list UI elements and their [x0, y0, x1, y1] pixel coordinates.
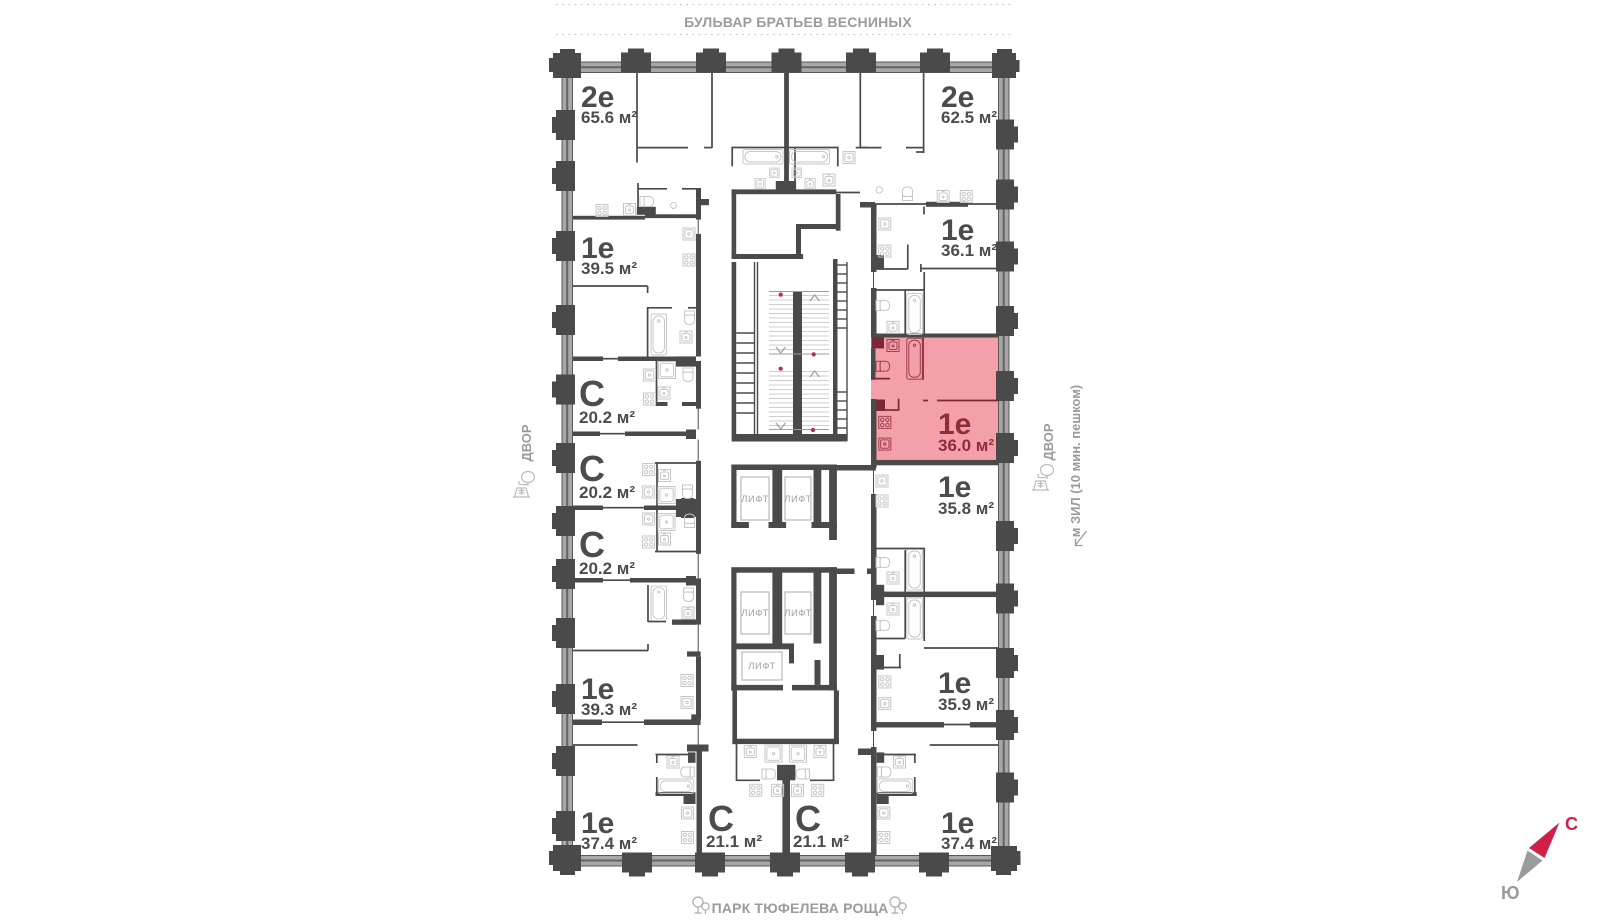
svg-text:65.6 м²: 65.6 м² — [581, 108, 637, 127]
svg-text:ЛИФТ: ЛИФТ — [784, 608, 812, 619]
svg-text:ЛИФТ: ЛИФТ — [741, 608, 769, 619]
svg-text:37.4 м²: 37.4 м² — [581, 834, 637, 853]
svg-text:ДВОР: ДВОР — [1041, 423, 1056, 460]
svg-text:м ЗИЛ (10 мин. пешком): м ЗИЛ (10 мин. пешком) — [1068, 385, 1083, 538]
svg-text:БУЛЬВАР БРАТЬЕВ ВЕСНИНЫХ: БУЛЬВАР БРАТЬЕВ ВЕСНИНЫХ — [684, 14, 912, 30]
svg-text:39.3 м²: 39.3 м² — [581, 700, 637, 719]
svg-text:36.0 м²: 36.0 м² — [938, 436, 994, 455]
svg-text:21.1 м²: 21.1 м² — [793, 832, 849, 851]
svg-text:20.2 м²: 20.2 м² — [579, 408, 635, 427]
svg-text:39.5 м²: 39.5 м² — [581, 259, 637, 278]
svg-text:62.5 м²: 62.5 м² — [941, 108, 997, 127]
svg-text:ДВОР: ДВОР — [519, 424, 534, 461]
svg-text:Ю: Ю — [1501, 883, 1520, 903]
svg-text:ЛИФТ: ЛИФТ — [741, 494, 769, 505]
svg-text:ЛИФТ: ЛИФТ — [748, 661, 776, 672]
svg-text:36.1 м²: 36.1 м² — [941, 241, 997, 260]
svg-text:20.2 м²: 20.2 м² — [579, 559, 635, 578]
svg-text:20.2 м²: 20.2 м² — [579, 483, 635, 502]
svg-text:21.1 м²: 21.1 м² — [706, 832, 762, 851]
svg-text:С: С — [1565, 814, 1578, 834]
svg-text:35.9 м²: 35.9 м² — [938, 695, 994, 714]
svg-text:ПАРК ТЮФЕЛЕВА РОЩА: ПАРК ТЮФЕЛЕВА РОЩА — [712, 900, 889, 916]
svg-text:ЛИФТ: ЛИФТ — [784, 494, 812, 505]
svg-text:37.4 м²: 37.4 м² — [941, 834, 997, 853]
svg-text:35.8 м²: 35.8 м² — [938, 499, 994, 518]
